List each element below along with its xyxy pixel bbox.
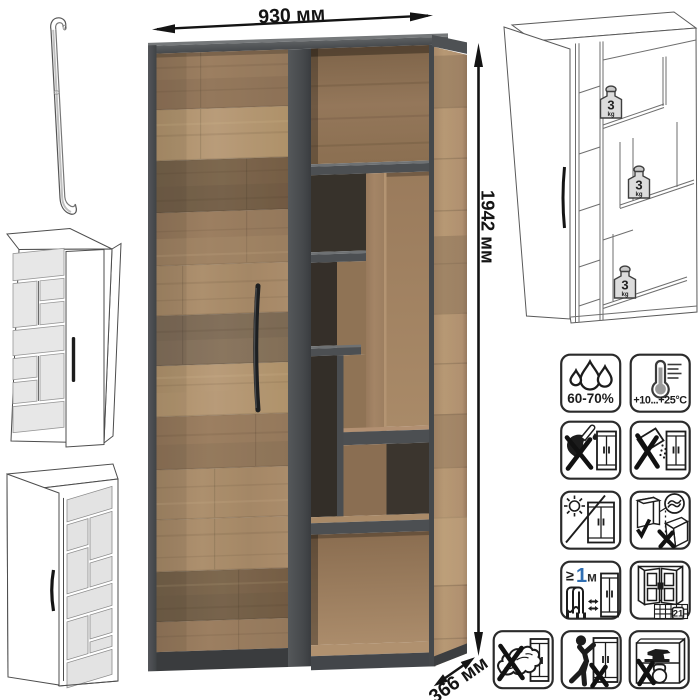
svg-text:kg: kg (635, 192, 642, 198)
svg-text:3: 3 (635, 178, 642, 193)
svg-text:+10...+25°C: +10...+25°C (633, 395, 687, 407)
svg-text:21: 21 (673, 609, 684, 620)
svg-text:1: 1 (576, 565, 587, 587)
svg-text:м: м (587, 570, 597, 585)
svg-text:60-70%: 60-70% (567, 391, 614, 406)
svg-text:1942 мм: 1942 мм (478, 190, 499, 264)
svg-text:3: 3 (607, 98, 614, 113)
svg-text:930 мм: 930 мм (258, 3, 326, 28)
svg-text:≥: ≥ (566, 569, 574, 585)
svg-text:kg: kg (621, 292, 628, 298)
svg-text:3: 3 (621, 278, 628, 293)
svg-text:kg: kg (607, 112, 614, 118)
